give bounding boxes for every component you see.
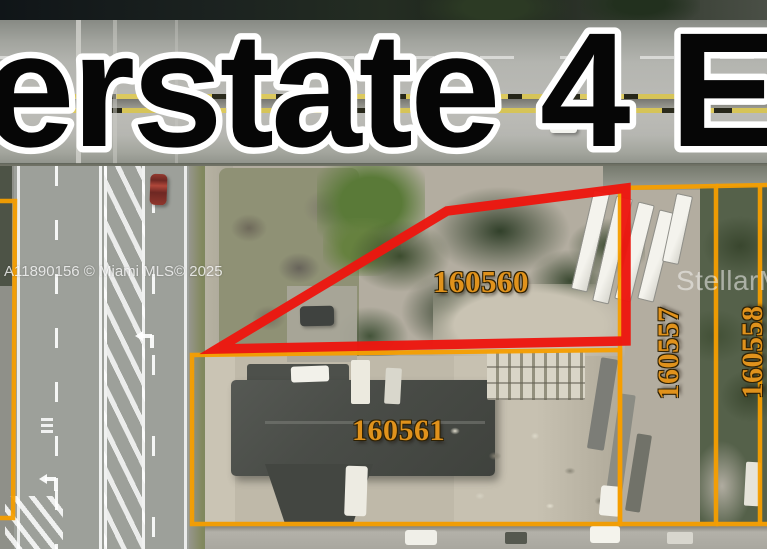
parcel-outline-west-partial: [0, 201, 15, 518]
mls-watermark: A11890156 © Miami MLS© 2025: [4, 263, 223, 280]
parcel-label-160558: 160558: [736, 306, 767, 399]
street-name-text: erstate 4 E: [0, 0, 767, 181]
aerial-listing-photo: 160560 160561 160557 160558 erstate 4 E …: [0, 0, 767, 549]
stellar-watermark: StellarM: [676, 265, 767, 297]
parcel-label-160560: 160560: [433, 264, 529, 300]
subject-parcel-outline-160560: [217, 188, 626, 349]
parcel-label-160557: 160557: [652, 307, 686, 400]
street-name-overlay: erstate 4 E: [0, 0, 767, 195]
parcel-label-160561: 160561: [352, 414, 445, 448]
